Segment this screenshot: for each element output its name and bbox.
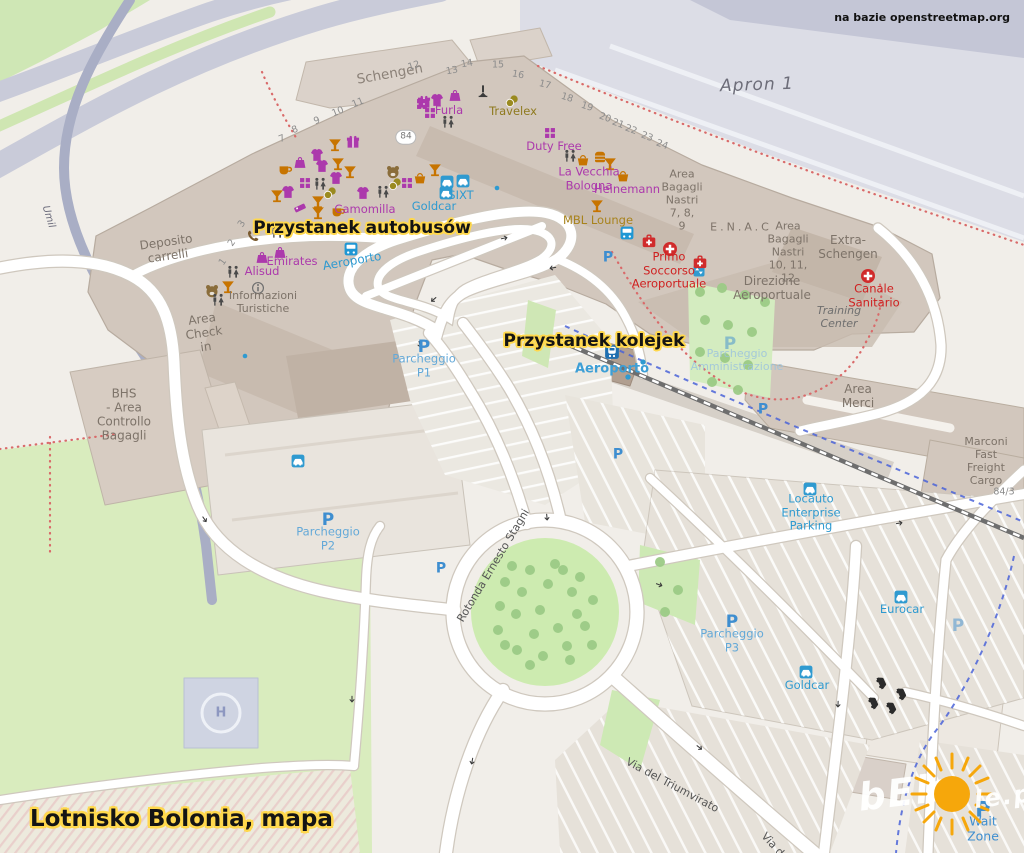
informazioni-turistiche: Informazioni Turistiche	[229, 290, 297, 316]
gate-number-3: 3	[236, 218, 249, 229]
gate-number-7: 7	[277, 133, 287, 146]
apron-1: Apron 1	[720, 74, 794, 97]
bhs-area-controllo-bagagli: BHS - Area Controllo Bagagli	[97, 387, 151, 444]
map-title: Lotnisko Bolonia, mapa	[30, 806, 333, 832]
gate-number-15: 15	[492, 59, 504, 70]
rotonda-ernesto-stagni: Rotonda Ernesto Stagni	[455, 507, 533, 625]
gate-number-11: 11	[350, 96, 365, 111]
parcheggio-amministrazione: Parcheggio Amministrazione	[691, 348, 784, 374]
travelex: Travelex	[489, 105, 537, 119]
p-icon-admin: P	[724, 334, 736, 354]
training-center: Training Center	[817, 305, 861, 331]
p-icon-p3: P	[726, 612, 738, 632]
umil-road: Umil	[39, 204, 57, 229]
goldcar-south: Goldcar	[785, 679, 830, 693]
sixt: SIXT	[448, 189, 473, 203]
canale-sanitario: Canale Sanitario	[848, 282, 899, 309]
p-icon-mid-lot: P	[613, 447, 623, 464]
parcheggio-p1: Parcheggio P1	[392, 352, 455, 379]
camomilla: Camomilla	[334, 203, 395, 217]
gate-number-17: 17	[538, 78, 552, 92]
parcheggio-p2: Parcheggio P2	[296, 525, 359, 552]
parcheggio-p3: Parcheggio P3	[700, 627, 763, 654]
area-bagagli-nastri-789: Area Bagagli Nastri 7, 8, 9	[661, 169, 702, 234]
ref-84: 84	[395, 130, 416, 145]
gate-number-10: 10	[330, 105, 345, 120]
heinemann: Heinemann	[594, 183, 660, 197]
deposito-carrelli: Deposito carrelli	[139, 231, 196, 266]
wait-zone: Wait Zone	[963, 814, 1004, 844]
goldcar-terminal: Goldcar	[412, 200, 457, 214]
p-icon-p1: P	[418, 337, 430, 357]
primo-soccorso-aeroportuale: Primo Soccorso Aeroportuale	[632, 251, 706, 292]
furla: Furla	[435, 104, 463, 118]
gate-number-21: 21	[610, 117, 625, 132]
enac: E.N.A.C	[710, 222, 772, 235]
p-icon-p2-west: P	[436, 561, 446, 578]
mbl-lounge: MBL Lounge	[563, 214, 633, 228]
gate-number-13: 13	[445, 64, 459, 77]
helipad-h: H	[216, 705, 227, 720]
via-d: Via d	[758, 830, 786, 853]
eurocar: Eurocar	[880, 603, 924, 617]
schengen: Schengen	[356, 61, 425, 88]
gate-number-14: 14	[460, 57, 474, 70]
map-label-layer: SchengenDeposito carrelliArea Check inIn…	[0, 0, 1024, 853]
gate-number-22: 22	[623, 123, 638, 138]
direzione-aeroportuale: Direzione Aeroportuale	[733, 274, 811, 302]
locauto-enterprise-parking: Locauto Enterprise Parking	[781, 493, 840, 534]
alisud: Alisud	[245, 265, 280, 279]
ref-84-3: 84/3	[993, 486, 1014, 497]
gate-number-9: 9	[312, 115, 322, 128]
gate-number-16: 16	[511, 68, 525, 81]
la-vecchia-bologna: La Vecchia Bologna	[558, 165, 619, 192]
gate-number-19: 19	[580, 100, 595, 114]
gate-number-2: 2	[226, 237, 239, 248]
duty-free: Duty Free	[526, 140, 582, 154]
p-icon-p2: P	[322, 510, 334, 530]
p-icon-station: P	[603, 250, 613, 267]
aeroporto-train-station: Aeroporto	[575, 361, 649, 376]
airport-map: SchengenDeposito carrelliArea Check inIn…	[0, 0, 1024, 853]
osm-attribution: na bazie openstreetmap.org	[834, 11, 1010, 24]
p-icon-merci: P	[758, 402, 768, 419]
area-bagagli-nastri-101112: Area Bagagli Nastri 10, 11, 12	[767, 221, 808, 286]
gate-number-1: 1	[217, 256, 230, 267]
area-check-in: Area Check in	[183, 309, 225, 356]
p-icon-rental-depot: P	[952, 616, 964, 636]
marconi-fast-freight-cargo: Marconi Fast Freight Cargo	[964, 436, 1007, 488]
p-icon-wait-zone: P	[975, 798, 990, 823]
via-del-triumvirato: Via del Triumvirato	[623, 756, 720, 816]
gate-number-20: 20	[597, 111, 612, 126]
area-merci: Area Merci	[842, 382, 874, 410]
gate-number-23: 23	[639, 130, 654, 145]
gate-number-12: 12	[407, 59, 422, 73]
gate-number-8: 8	[290, 124, 300, 137]
aeroporto-bus-stop: Aeroporto	[322, 249, 383, 273]
gate-number-24: 24	[654, 138, 669, 153]
extra-schengen: Extra- Schengen	[818, 233, 877, 261]
gate-number-18: 18	[560, 91, 575, 105]
emirates: Emirates	[266, 255, 317, 269]
